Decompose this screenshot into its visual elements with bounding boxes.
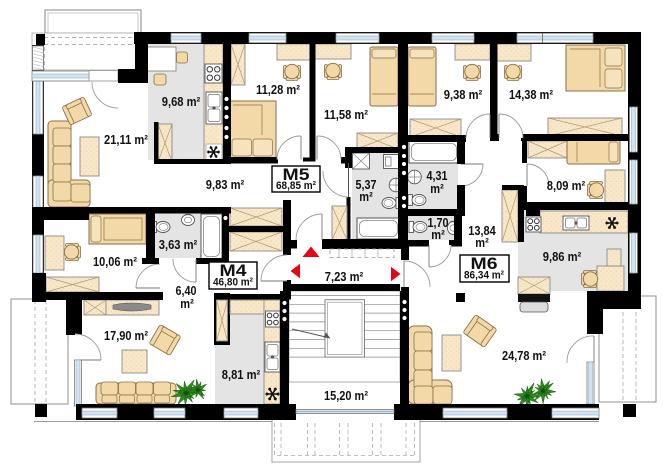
svg-text:4,31: 4,31 xyxy=(427,169,448,183)
svg-text:m²: m² xyxy=(475,236,489,250)
svg-text:86,34 m²: 86,34 m² xyxy=(464,270,504,282)
svg-text:11,58 m²: 11,58 m² xyxy=(324,107,369,122)
svg-text:21,11 m²: 21,11 m² xyxy=(104,132,149,147)
svg-text:m²: m² xyxy=(431,228,445,242)
svg-text:17,90 m²: 17,90 m² xyxy=(104,328,148,343)
svg-text:46,80 m²: 46,80 m² xyxy=(213,277,253,289)
svg-text:9,83 m²: 9,83 m² xyxy=(206,177,245,192)
svg-text:9,86 m²: 9,86 m² xyxy=(543,249,582,264)
svg-text:9,38 m²: 9,38 m² xyxy=(444,87,483,102)
svg-text:8,09 m²: 8,09 m² xyxy=(547,178,586,193)
svg-text:11,28 m²: 11,28 m² xyxy=(256,82,301,97)
svg-text:24,78 m²: 24,78 m² xyxy=(502,348,546,363)
svg-text:6,40: 6,40 xyxy=(176,284,197,298)
svg-text:9,68 m²: 9,68 m² xyxy=(162,94,201,109)
svg-text:m²: m² xyxy=(180,297,194,311)
svg-text:68,85 m²: 68,85 m² xyxy=(276,180,316,192)
svg-text:14,38 m²: 14,38 m² xyxy=(509,87,553,102)
svg-text:15,20 m²: 15,20 m² xyxy=(324,388,368,403)
svg-text:10,06 m²: 10,06 m² xyxy=(93,254,137,269)
svg-text:m²: m² xyxy=(430,182,444,196)
svg-text:8,81 m²: 8,81 m² xyxy=(222,367,261,382)
svg-text:3,63 m²: 3,63 m² xyxy=(159,237,198,252)
svg-text:7,23 m²: 7,23 m² xyxy=(325,269,364,284)
svg-text:m²: m² xyxy=(359,190,373,204)
